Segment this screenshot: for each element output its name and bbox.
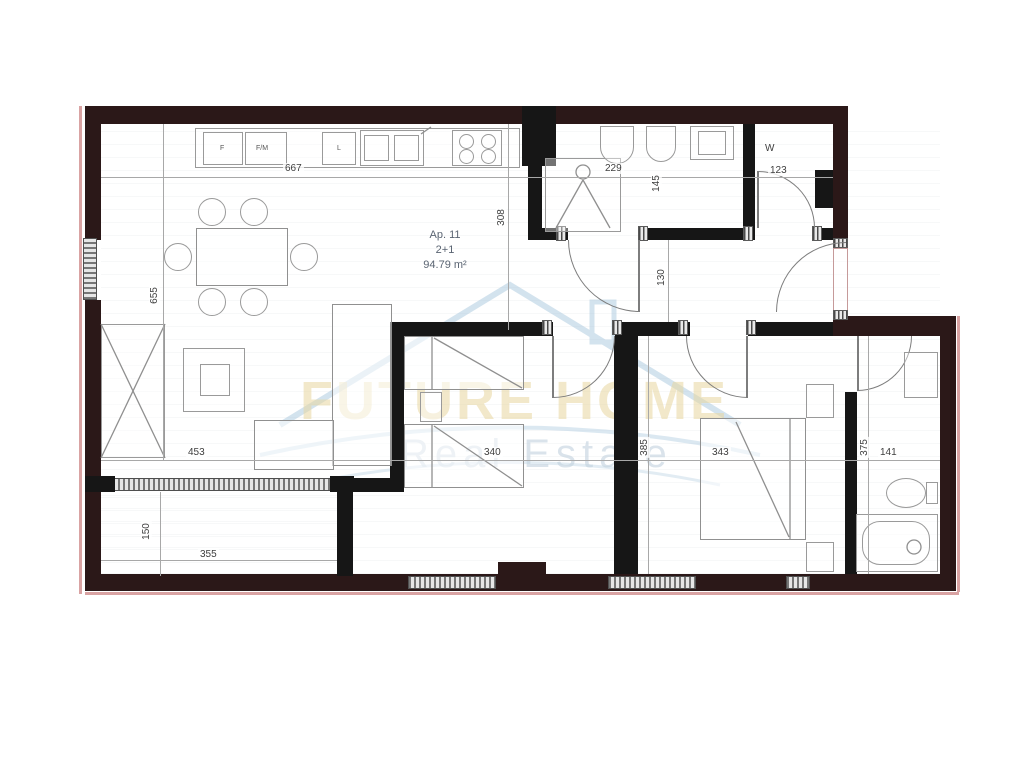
dim-bedroom1-depth: 385 [639, 437, 650, 458]
dim-living-height: 655 [149, 285, 160, 306]
dim-bedroom1-width: 340 [482, 447, 503, 458]
dim-line [508, 124, 509, 330]
floor-plan: FUTURE HOME Real Estate [0, 0, 1023, 768]
dim-line [101, 177, 833, 178]
unit-name: Ap. 11 [398, 228, 492, 243]
dim-ensuite-depth: 375 [859, 437, 870, 458]
dim-line [160, 492, 161, 576]
dim-line [163, 124, 164, 460]
dim-bedroom2-width: 343 [710, 447, 731, 458]
dim-ensuite-width: 141 [878, 447, 899, 458]
unit-info: Ap. 11 2+1 94.79 m² [398, 228, 492, 273]
dim-living-depth: 308 [496, 207, 507, 228]
dim-line [101, 560, 337, 561]
dim-bath-width: 229 [603, 163, 624, 174]
dim-line [668, 240, 669, 322]
plan-linework [0, 0, 1023, 768]
dim-kitchen-width: 667 [283, 163, 304, 174]
dim-bath-depth: 145 [651, 173, 662, 194]
dim-hall-width: 130 [656, 267, 667, 288]
wc-room-label: W [763, 143, 776, 154]
dim-wc-width: 123 [768, 165, 789, 176]
dim-balcony-width: 355 [198, 549, 219, 560]
unit-area: 94.79 m² [398, 258, 492, 273]
unit-layout: 2+1 [398, 243, 492, 258]
dim-line [101, 460, 940, 461]
dim-living-width: 453 [186, 447, 207, 458]
dim-balcony-depth: 150 [141, 521, 152, 542]
